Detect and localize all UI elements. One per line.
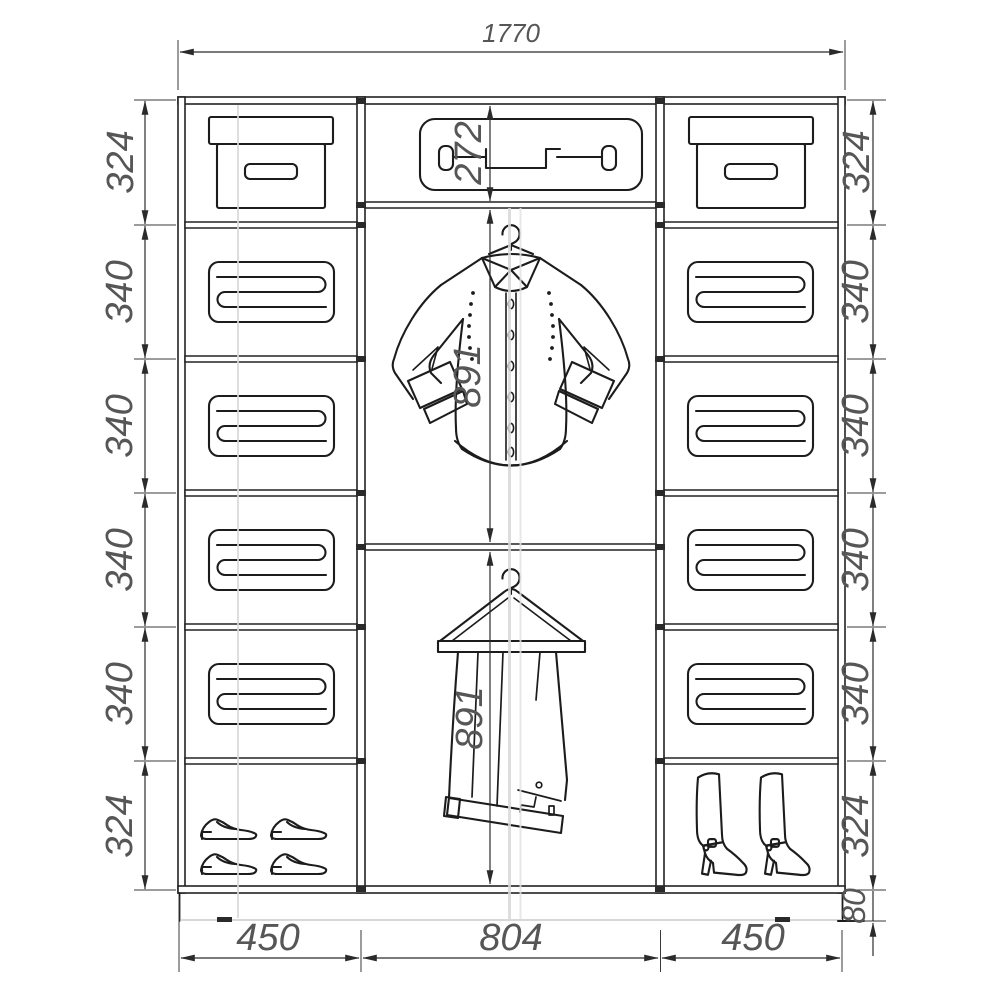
dim-label-right: 340: [835, 662, 877, 725]
base-foot: [217, 917, 232, 922]
dim-label-mid-pants: 891: [449, 686, 491, 749]
left-side-panel: [178, 97, 185, 893]
dim-label-right: 324: [836, 130, 878, 193]
folded-linens-icon: [209, 396, 334, 456]
folded-linens-icon: [209, 530, 334, 590]
dim-label-bottom: 450: [236, 917, 299, 959]
sleeve-crease-mark: [413, 347, 438, 370]
dim-label-total-width: 1770: [482, 18, 540, 48]
storage-box-icon: [689, 117, 813, 208]
right-side-panel: [838, 97, 845, 893]
dim-label-right: 324: [835, 794, 877, 857]
bottom-panel: [178, 886, 845, 893]
hanger-bar: [438, 641, 585, 652]
dim-label-left: 340: [99, 662, 141, 725]
shoe-icon: [201, 854, 256, 874]
left-sleeve: [393, 285, 441, 399]
trouser-right-edge: [556, 652, 567, 800]
shoe-icon: [201, 819, 256, 839]
dim-label-left: 324: [100, 130, 142, 193]
dim-label-right: 340: [835, 260, 877, 323]
waistband: [447, 798, 563, 833]
shoe-icon: [271, 854, 326, 874]
sleeve-crease-mark: [584, 347, 609, 370]
dim-label-mid-top: 272: [448, 121, 490, 185]
dimension-labels: 1770 324 340 340 340 340 324 324 340 340…: [99, 18, 878, 959]
dim-label-base-height: 80: [836, 888, 872, 924]
dim-label-left: 340: [99, 528, 141, 591]
dim-label-right: 340: [835, 528, 877, 591]
right-cuff: [560, 362, 614, 408]
dim-label-bottom: 450: [721, 917, 784, 959]
folded-linens-icon: [209, 262, 334, 322]
top-panel: [178, 97, 845, 104]
right-column-shelves: [664, 222, 838, 764]
folded-linens-icon: [688, 396, 813, 456]
boot-icon: [697, 773, 747, 875]
right-sleeve: [581, 285, 629, 399]
shoe-icon: [271, 819, 326, 839]
drawing-canvas: 1770 324 340 340 340 340 324 324 340 340…: [0, 0, 1000, 1000]
dim-label-left: 340: [99, 260, 141, 323]
dim-label-bottom: 804: [479, 917, 542, 959]
dim-label-left: 324: [99, 794, 141, 857]
boot-icon: [760, 773, 810, 875]
suitcase-latch: [602, 146, 616, 170]
dim-label-right: 340: [835, 394, 877, 457]
folded-linens-icon: [688, 664, 813, 724]
folded-linens-icon: [688, 530, 813, 590]
wardrobe-dimension-diagram: 1770 324 340 340 340 340 324 324 340 340…: [0, 0, 1000, 1000]
waist-button: [536, 782, 542, 788]
storage-box-icon: [209, 117, 333, 208]
folded-linens-icon: [688, 262, 813, 322]
dim-label-mid-shirt: 891: [447, 344, 489, 407]
folded-linens-icon: [209, 664, 334, 724]
dim-label-left: 340: [99, 394, 141, 457]
left-column-shelves: [185, 222, 357, 764]
